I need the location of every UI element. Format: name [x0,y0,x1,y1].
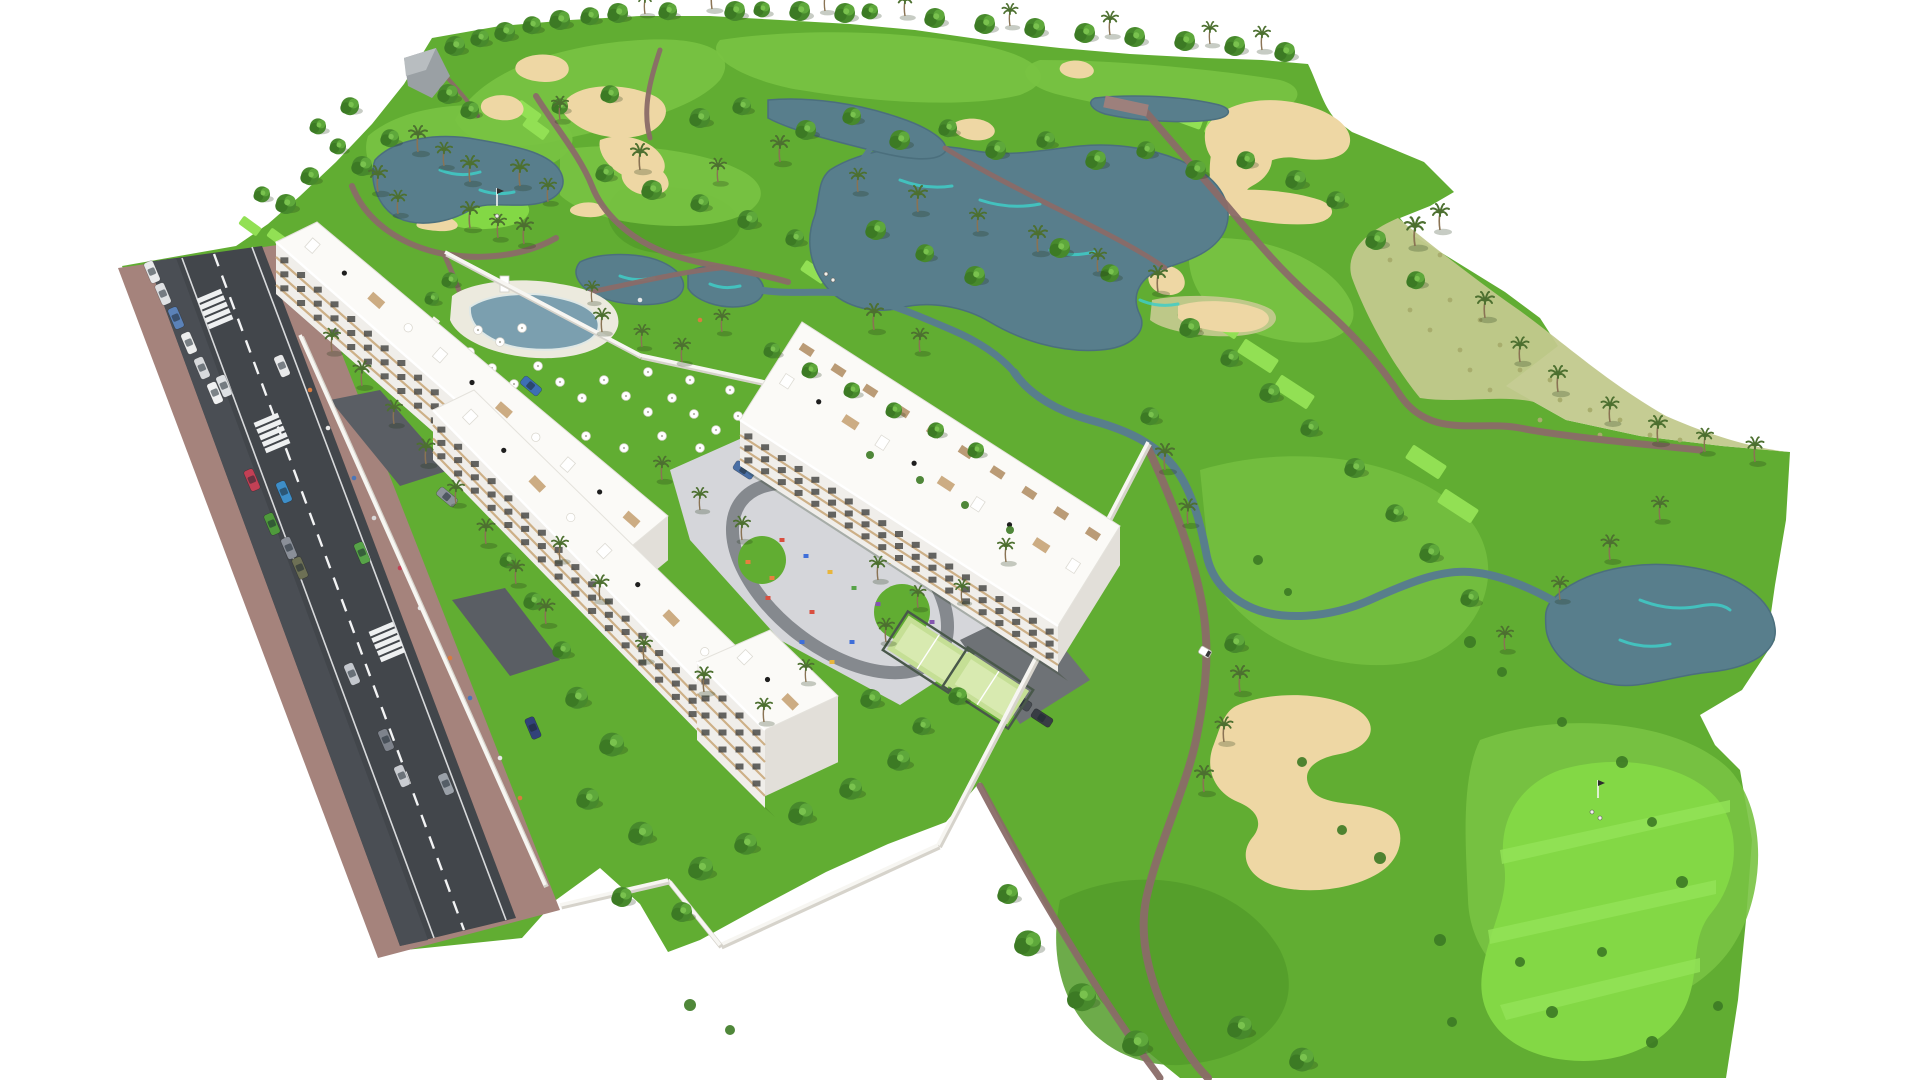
umbrella-pole [559,381,561,383]
roof-vent [469,380,474,385]
window [736,764,744,770]
palm-shadow [464,227,482,233]
window [431,389,439,395]
umbrella-pole [737,415,739,417]
window [280,285,288,291]
scrub-speckle [1458,348,1463,353]
palm-shadow [1604,421,1621,427]
umbrella-pole [537,365,539,367]
canopy-highlight [1083,28,1089,34]
bush [1434,934,1446,946]
roof-vent [597,489,602,494]
bush [1284,588,1292,596]
window [862,533,870,539]
canopy-highlight [699,863,706,870]
window [811,501,819,507]
palm-trunk [824,0,825,11]
window [381,359,389,365]
window [753,781,761,787]
window [811,477,819,483]
canopy-highlight [1079,990,1087,998]
bush [725,1025,735,1035]
bush [684,999,696,1011]
window [397,360,405,366]
bush [1515,957,1525,967]
window [845,498,853,504]
window [828,512,836,518]
canopy-highlight [1233,638,1239,644]
bush [1497,667,1507,677]
palm-shadow [493,237,509,243]
window [912,566,920,572]
tree-deciduous [253,186,273,202]
scrub-speckle [1648,433,1653,438]
window [736,747,744,753]
playground-equipment [828,570,833,574]
window [280,271,288,277]
window [845,522,853,528]
window [437,440,445,446]
canopy-highlight [639,828,646,835]
tree-deciduous [724,1,749,21]
window [795,466,803,472]
palm-shadow [915,351,931,357]
tree-deciduous [1174,31,1199,51]
canopy-highlight [650,185,656,191]
canopy-highlight [1374,235,1380,241]
bush [1447,1017,1457,1027]
palm-shadow [1159,469,1177,475]
canopy-highlight [446,89,452,95]
canopy-highlight [849,784,856,791]
canopy-highlight [680,907,686,913]
window [895,555,903,561]
window [689,711,697,717]
canopy-highlight [1188,323,1194,329]
canopy-highlight [1353,463,1359,469]
umbrella-pole [513,383,515,385]
aerial-render-golf-resort [0,0,1920,1080]
window [521,539,529,545]
canopy-highlight [261,191,266,196]
window [862,509,870,515]
tree-deciduous [658,2,681,20]
window [638,646,646,652]
window [895,531,903,537]
tree-deciduous [834,3,859,23]
palm-shadow [511,583,527,589]
window [979,609,987,615]
palm-shadow [637,346,652,351]
playground-equipment [780,538,785,542]
palm-shadow [439,165,455,171]
palm-shadow [957,601,972,606]
window [778,467,786,473]
window [504,509,512,515]
tree-deciduous [580,7,603,25]
tree-palm [1254,27,1273,55]
palm-shadow [412,151,430,157]
palm-shadow [640,13,655,18]
window [945,564,953,570]
tree-deciduous [1124,27,1149,47]
canopy-highlight [1393,509,1398,514]
playground-equipment [770,576,775,580]
window [538,543,546,549]
window [297,300,305,306]
window [995,608,1003,614]
palm-shadow [1604,559,1621,565]
palm-shadow [713,181,729,187]
canopy-highlight [1134,1037,1142,1045]
scrub-speckle [1388,258,1393,263]
roof-umbrella [532,433,540,441]
pedestrian [638,298,643,303]
canopy-highlight [771,347,776,352]
tree-deciduous [300,167,323,185]
tree-palm [1002,4,1020,31]
palm-shadow [900,15,916,21]
window [622,642,630,648]
canopy-highlight [994,145,1000,151]
scrub-speckle [1588,408,1593,413]
roof-vent [501,448,506,453]
palm-shadow [1552,391,1570,397]
umbrella-pole [661,435,663,437]
canopy-highlight [733,6,739,12]
canopy-highlight [1238,1022,1245,1029]
palm-shadow [853,191,869,197]
roof-vent [912,461,917,466]
playground-equipment [830,660,835,664]
golfer [824,272,828,276]
window [811,489,819,495]
pedestrian [448,656,453,661]
bush [916,476,924,484]
window [672,681,680,687]
umbrella-pole [625,395,627,397]
umbrella-pole [689,379,691,381]
window [753,730,761,736]
window [672,694,680,700]
window [297,286,305,292]
tree-palm [637,0,655,18]
window [979,585,987,591]
window [1046,653,1054,659]
window [488,505,496,511]
window [736,730,744,736]
window [314,301,322,307]
window [364,331,372,337]
window [702,713,710,719]
bush [1646,1036,1658,1048]
palm-shadow [1652,441,1670,447]
palm-shadow [1105,34,1121,40]
canopy-highlight [761,6,766,11]
window [878,520,886,526]
scrub-speckle [1428,328,1433,333]
roof-vent [635,582,640,587]
window [778,479,786,485]
playground-equipment [800,640,805,644]
palm-shadow [774,161,792,167]
palm-shadow [634,169,652,175]
canopy-highlight [851,387,856,392]
window [845,510,853,516]
canopy-highlight [586,794,593,801]
palm-shadow [1032,251,1050,257]
canopy-highlight [608,90,613,95]
canopy-highlight [1026,937,1034,945]
palm-shadow [759,721,775,727]
palm-shadow [973,231,989,237]
canopy-highlight [507,557,512,562]
window [347,344,355,350]
window [689,698,697,704]
window [1012,619,1020,625]
canopy-highlight [360,161,366,167]
bush [1253,555,1263,565]
canopy-highlight [610,739,617,746]
canopy-highlight [531,597,536,602]
canopy-highlight [1233,41,1239,47]
tree-deciduous [861,3,881,19]
window [778,455,786,461]
bush [1647,817,1657,827]
window [689,684,697,690]
window [878,544,886,550]
playground-equipment [766,596,771,600]
playground-equipment [850,640,855,644]
canopy-highlight [478,34,483,39]
window [719,696,727,702]
window [945,576,953,582]
palm-shadow [1408,245,1428,252]
pedestrian [518,796,523,801]
palm-shadow [1205,43,1220,48]
window [928,565,936,571]
tree-deciduous [789,1,814,21]
window [571,577,579,583]
tree-palm [1102,12,1121,40]
scrub-speckle [1408,308,1413,313]
canopy-highlight [744,839,751,846]
canopy-highlight [809,367,814,372]
canopy-highlight [973,271,979,277]
canopy-highlight [983,19,989,25]
golfer [1598,816,1602,820]
window [761,456,769,462]
canopy-highlight [898,135,904,141]
window [471,474,479,480]
window [280,257,288,263]
palm-shadow [1001,561,1017,567]
golfer [1590,810,1594,814]
palm-shadow [717,331,732,336]
tree-deciduous [607,3,632,23]
canopy-highlight [284,199,290,205]
canopy-highlight [1268,388,1274,394]
bush [1557,717,1567,727]
bush [1374,852,1386,864]
window [672,667,680,673]
umbrella-pole [671,397,673,399]
canopy-highlight [558,15,564,21]
window [437,453,445,459]
canopy-highlight [698,113,704,119]
scene-canvas [0,0,1920,1080]
canopy-highlight [956,692,961,697]
palm-shadow [820,10,835,15]
canopy-highlight [1228,354,1233,359]
tree-deciduous [329,138,349,154]
window [347,330,355,336]
window [488,478,496,484]
playground-equipment [876,602,881,606]
canopy-highlight [935,427,940,432]
window [895,543,903,549]
window [736,713,744,719]
canopy-highlight [1428,548,1434,554]
window [555,574,563,580]
window [862,521,870,527]
canopy-highlight [1334,196,1339,201]
canopy-highlight [575,693,582,700]
palm-shadow [1434,229,1452,235]
window [314,287,322,293]
scrub-speckle [1538,418,1543,423]
window [753,747,761,753]
bush [1297,757,1307,767]
canopy-highlight [869,694,875,700]
canopy-highlight [1044,136,1049,141]
window [414,403,422,409]
window [437,427,445,433]
window [912,542,920,548]
window [1029,618,1037,624]
window [538,556,546,562]
umbrella-pole [693,413,695,415]
window [504,495,512,501]
window [588,608,596,614]
canopy-highlight [874,225,880,231]
bush [1713,1001,1723,1011]
canopy-highlight [1283,47,1289,53]
palm-shadow [1198,791,1216,797]
palm-shadow [912,211,930,217]
palm-shadow [327,351,343,357]
playground-equipment [930,620,935,624]
window [605,612,613,618]
palm-shadow [695,509,710,514]
canopy-highlight [746,215,752,221]
umbrella-pole [647,371,649,373]
window [719,730,727,736]
window [588,595,596,601]
palm-shadow [868,329,886,335]
palm-shadow [451,503,467,509]
palm-shadow [1749,461,1766,467]
canopy-highlight [308,172,313,177]
canopy-highlight [388,134,393,139]
canopy-highlight [1194,165,1200,171]
window [928,553,936,559]
palm-shadow [555,559,571,565]
tree-deciduous [309,118,329,134]
palm-shadow [698,691,715,697]
scrub-speckle [1448,298,1453,303]
scrub-speckle [1558,398,1563,403]
palm-shadow [801,681,816,686]
canopy-highlight [923,249,928,254]
palm-shadow [597,331,613,337]
tree-deciduous [1024,18,1049,38]
roof-umbrella [567,513,575,521]
palm-shadow [555,119,571,125]
scrub-speckle [1488,388,1493,393]
golfer [495,214,499,218]
window [795,478,803,484]
window [655,650,663,656]
window [622,629,630,635]
window [471,488,479,494]
tree-deciduous [1224,36,1249,56]
window [761,468,769,474]
window [1012,631,1020,637]
window [454,470,462,476]
window [744,445,752,451]
tree-deciduous [924,8,949,28]
canopy-highlight [1133,32,1139,38]
umbrella-pole [603,379,605,381]
bush [961,501,969,509]
tree-deciduous [1074,23,1099,43]
palm-shadow [1182,523,1199,529]
window [605,625,613,631]
canopy-highlight [666,7,671,12]
scrub-speckle [1468,368,1473,373]
window [655,677,663,683]
window [1046,629,1054,635]
window [331,301,339,307]
palm-frond [645,0,651,1]
umbrella-pole [585,435,587,437]
pedestrian [308,388,313,393]
palm-shadow [706,8,723,14]
canopy-highlight [799,808,806,815]
palm-trunk [711,0,712,9]
window [744,433,752,439]
umbrella-pole [623,447,625,449]
canopy-highlight [337,143,342,148]
window [995,620,1003,626]
window [719,747,727,753]
umbrella-pole [715,429,717,431]
playground-equipment [810,610,815,614]
canopy-highlight [468,106,473,111]
canopy-highlight [1183,36,1189,42]
tree-palm [897,0,916,21]
playground-equipment [746,560,751,564]
window [381,373,389,379]
canopy-highlight [530,21,535,26]
tree-palm [703,0,723,14]
canopy-highlight [603,169,608,174]
bush [1006,526,1014,534]
umbrella-pole [699,447,701,449]
window [702,730,710,736]
window [795,490,803,496]
